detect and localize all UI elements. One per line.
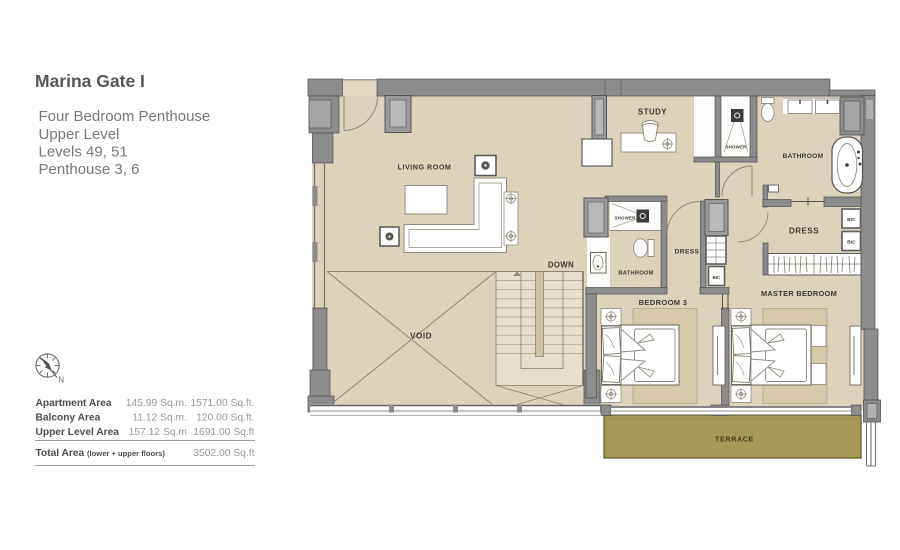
svg-text:MASTER BEDROOM: MASTER BEDROOM: [761, 289, 837, 298]
svg-text:1571.00 Sq.ft.: 1571.00 Sq.ft.: [190, 398, 254, 409]
svg-text:1691.00 Sq.ft: 1691.00 Sq.ft: [193, 427, 254, 438]
svg-text:Apartment Area: Apartment Area: [36, 398, 112, 409]
svg-text:3502.00 Sq.ft: 3502.00 Sq.ft: [193, 448, 254, 459]
svg-text:120.00 Sq.ft.: 120.00 Sq.ft.: [196, 413, 254, 424]
svg-text:BIC: BIC: [713, 275, 722, 280]
svg-text:Marina Gate I: Marina Gate I: [35, 71, 145, 91]
svg-text:Upper Level: Upper Level: [39, 126, 120, 143]
svg-text:DRESS: DRESS: [675, 249, 700, 256]
svg-text:Total Area (lower + upper floo: Total Area (lower + upper floors): [36, 448, 166, 459]
svg-text:VOID: VOID: [410, 332, 432, 341]
svg-text:BIC: BIC: [847, 240, 856, 246]
svg-text:BATHROOM: BATHROOM: [618, 271, 653, 277]
svg-text:N: N: [59, 376, 65, 385]
svg-text:STUDY: STUDY: [638, 108, 667, 117]
svg-text:TERRACE: TERRACE: [715, 435, 754, 444]
svg-text:BIC: BIC: [847, 217, 856, 223]
svg-text:11.12 Sq.m.: 11.12 Sq.m.: [132, 413, 187, 424]
svg-text:DOWN: DOWN: [548, 261, 574, 270]
svg-text:LIVING ROOM: LIVING ROOM: [398, 163, 452, 172]
svg-text:Levels 49, 51: Levels 49, 51: [39, 144, 128, 161]
svg-text:BATHROOM: BATHROOM: [783, 153, 824, 160]
svg-text:Upper Level Area: Upper Level Area: [36, 427, 120, 438]
svg-text:SHOWER: SHOWER: [726, 145, 748, 150]
svg-text:145.99 Sq.m.: 145.99 Sq.m.: [126, 398, 187, 409]
svg-text:SHOWER: SHOWER: [615, 216, 637, 221]
svg-text:Penthouse 3, 6: Penthouse 3, 6: [39, 161, 140, 178]
svg-text:Balcony Area: Balcony Area: [36, 413, 101, 424]
svg-text:BEDROOM 3: BEDROOM 3: [639, 298, 688, 307]
svg-text:DRESS: DRESS: [789, 227, 819, 236]
svg-text:Four Bedroom Penthouse: Four Bedroom Penthouse: [39, 108, 211, 125]
svg-text:157.12 Sq.m: 157.12 Sq.m: [129, 427, 187, 438]
